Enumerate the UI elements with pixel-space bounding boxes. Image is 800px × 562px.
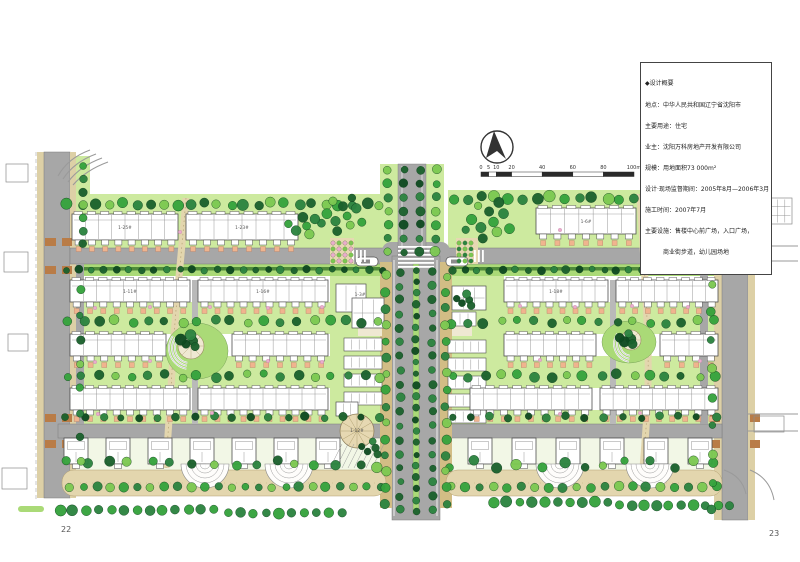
north-arrow-icon	[481, 131, 513, 163]
design-summary-box: ◆设计概要 地点：中华人民共和国辽宁省沈阳市 主要用途：住宅 业主：沈阳万科房地…	[640, 62, 772, 275]
svg-text:10: 10	[493, 165, 499, 171]
page-number-right: 23	[769, 529, 779, 538]
design-summary-line: 地点：中华人民共和国辽宁省沈阳市	[645, 102, 767, 109]
design-summary-line: 规模：用地面积73 000m²	[645, 165, 767, 172]
design-summary-line: 主要设施：售楼中心前广场，入口广场，	[645, 228, 767, 235]
design-summary-line: 施工时间：2007年7月	[645, 207, 767, 214]
svg-text:1-23#: 1-23#	[235, 225, 249, 231]
page-number-left: 22	[61, 525, 71, 534]
svg-text:1-12#: 1-12#	[350, 428, 364, 434]
design-summary-line: 设计·现场监督期间：2005年8月—2006年3月	[645, 186, 767, 193]
svg-text:1-25#: 1-25#	[118, 225, 132, 231]
svg-text:1-11#: 1-11#	[123, 289, 137, 295]
svg-text:0: 0	[479, 165, 482, 171]
svg-text:1-6#: 1-6#	[581, 219, 592, 225]
scale-bar: 051020406080100m	[479, 165, 641, 177]
svg-text:20: 20	[508, 165, 514, 171]
design-summary-line: 业主：沈阳万科房地产开发有限公司	[645, 144, 767, 151]
svg-text:1-18#: 1-18#	[549, 289, 563, 295]
svg-text:1-3#: 1-3#	[355, 292, 366, 298]
svg-text:80: 80	[600, 165, 606, 171]
site-plan-page: 1-25#1-23#1-11#1-16#1-6#1-18#1-12#1-3#05…	[0, 0, 800, 562]
design-summary-line: 主要用途：住宅	[645, 123, 767, 130]
design-summary-line: 商业街步道，幼儿园场地	[645, 249, 767, 256]
svg-text:1-16#: 1-16#	[256, 289, 270, 295]
svg-text:60: 60	[570, 165, 576, 171]
svg-text:5: 5	[487, 165, 490, 171]
svg-text:40: 40	[539, 165, 545, 171]
design-summary-title: ◆设计概要	[645, 80, 767, 87]
